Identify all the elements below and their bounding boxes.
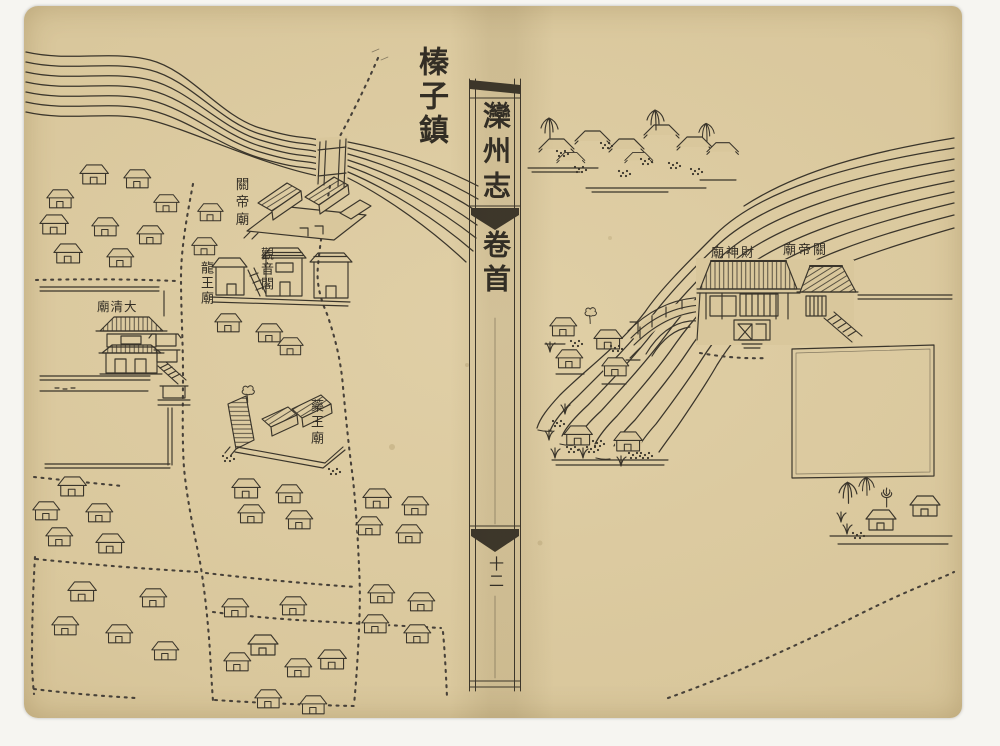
label-yaowang-temple: 藥王廟 [309, 399, 322, 447]
left-page-title: 榛子鎮 [415, 46, 445, 148]
house [46, 528, 73, 546]
southeast-hamlet [830, 477, 952, 544]
house [106, 625, 133, 643]
grass-tuft [551, 448, 560, 458]
spine-book-title: 灤州志 [481, 101, 509, 206]
label-longwang-temple: 龍王廟 [199, 261, 212, 306]
house [224, 653, 251, 671]
house [286, 511, 313, 529]
spine-page-number: 十二 [488, 556, 503, 590]
house [107, 249, 134, 267]
house [362, 615, 389, 633]
house [238, 505, 265, 523]
house [192, 238, 218, 255]
spine-top-black-bar [470, 80, 520, 94]
house [68, 582, 97, 601]
house [58, 477, 87, 496]
foliage-dots [619, 171, 630, 176]
grass-tuft [837, 512, 846, 522]
house [614, 432, 643, 451]
house [866, 510, 896, 530]
speck-dots [329, 469, 340, 474]
speck-dots [567, 447, 578, 452]
house [300, 696, 327, 714]
riverside-village [528, 110, 738, 192]
house [248, 635, 278, 655]
house-roof [575, 131, 610, 144]
fishtail-mark-upper [471, 208, 519, 230]
house [33, 502, 60, 520]
foliage-dots [587, 447, 598, 452]
willow-tree-icon [541, 118, 558, 138]
longwang-guanyin-complex [210, 248, 352, 306]
house [550, 318, 577, 336]
pine-tree-icon [882, 488, 892, 507]
house [910, 496, 940, 516]
house [40, 215, 69, 234]
right-roads [668, 353, 954, 698]
house [222, 599, 249, 617]
house [47, 190, 74, 208]
house [368, 585, 395, 603]
guandi-temple-complex [244, 177, 371, 240]
house [602, 358, 629, 376]
house [278, 338, 304, 355]
house [80, 165, 109, 184]
house [280, 597, 307, 615]
house [564, 426, 593, 445]
foliage-dots [571, 341, 582, 346]
house [198, 204, 224, 221]
spine-section-title: 卷首 [481, 230, 509, 298]
willow-tree-icon [839, 482, 857, 503]
walled-field [792, 345, 934, 478]
foliage-dots [691, 169, 702, 174]
house [137, 226, 164, 244]
label-guandi-temple-right: 廟帝關 [783, 244, 828, 257]
house [232, 479, 261, 498]
house-roof [644, 125, 679, 138]
caishen-guandi-temple-complex [696, 258, 952, 348]
house [52, 617, 79, 635]
label-caishen-temple: 廟神財 [711, 247, 756, 260]
house [256, 324, 283, 342]
label-guanyin-pavilion: 觀音閣 [259, 247, 272, 292]
house [140, 589, 167, 607]
shrine-house [318, 650, 347, 669]
foliage-dots [641, 453, 652, 458]
house [154, 195, 180, 212]
house [215, 314, 242, 332]
daqing-temple-compound [40, 287, 190, 468]
house-roof [707, 143, 739, 155]
compound-wall [858, 295, 952, 299]
fishtail-mark-lower [471, 529, 519, 552]
house [152, 642, 179, 660]
speck-dots [629, 453, 640, 458]
house [404, 625, 431, 643]
house [396, 525, 423, 543]
house [408, 593, 435, 611]
house [285, 659, 312, 677]
speck-dots [223, 456, 234, 461]
house-roof [625, 152, 653, 162]
west-bank-houses [545, 308, 629, 384]
grass-tuft [843, 524, 852, 534]
house [363, 489, 392, 508]
yaowang-temple-complex [223, 386, 345, 474]
house [356, 517, 383, 535]
house [402, 497, 429, 515]
house [96, 534, 125, 553]
house [86, 504, 113, 522]
label-daqing-temple: 廟清大 [97, 301, 138, 314]
willow-tree-icon [859, 477, 874, 495]
house [276, 485, 303, 503]
label-guandi-temple-left: 關帝廟 [233, 177, 247, 230]
house [92, 218, 119, 236]
house [255, 690, 282, 708]
house-roof [609, 139, 644, 152]
scanned-gazetteer-spread: 榛子鎮 灤州志 卷首 十二 關帝廟 龍王廟 觀音閣 廟清大 藥王廟 廟神財 廟帝… [0, 0, 1000, 746]
house [54, 244, 83, 263]
house [124, 170, 151, 188]
house [556, 350, 583, 368]
tree-icon [585, 308, 596, 324]
grass-tuft [579, 448, 588, 458]
foliage-dots [669, 163, 680, 168]
